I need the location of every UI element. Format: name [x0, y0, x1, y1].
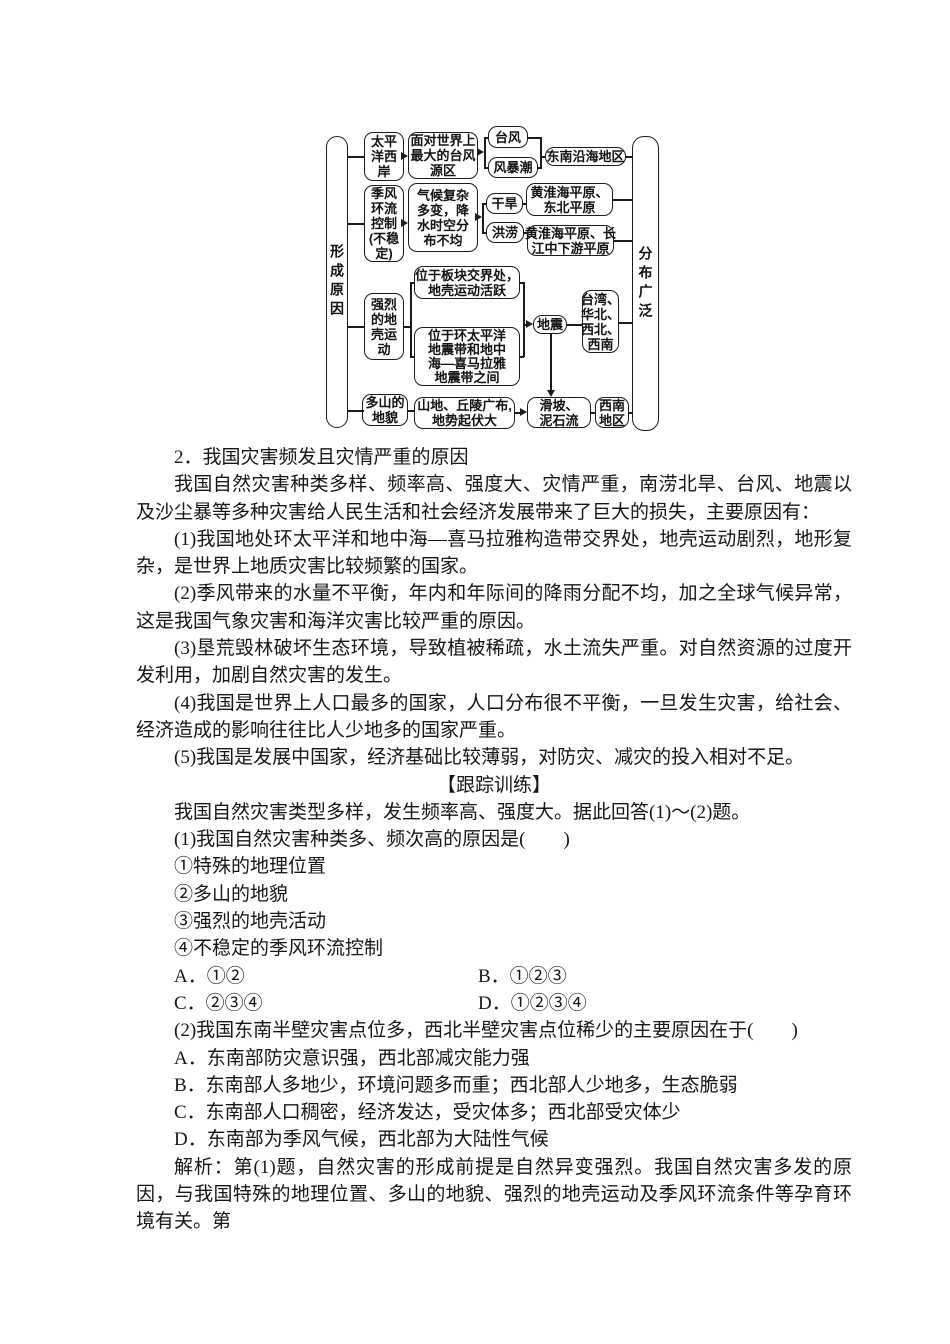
node-earthquake: 地震 — [533, 315, 567, 334]
node-se-coastal-area: 东南沿海地区 — [545, 147, 626, 166]
node-huanghuai-northeast-plain: 黄淮海平原、 东北平原 — [526, 183, 613, 216]
connector — [410, 282, 415, 284]
node-landslide-debris-flow: 滑坡、 泥石流 — [527, 397, 591, 428]
connector — [410, 356, 415, 358]
option-c: C．②③④ — [174, 990, 478, 1017]
connector — [482, 232, 487, 234]
reason-paragraph-4: (4)我国是世界上人口最多的国家，人口分布很不平衡，一旦发生灾害，给社会、经济造… — [136, 690, 852, 745]
node-hilly-terrain: 山地、丘陵广布, 地势起伏大 — [414, 397, 515, 429]
node-typhoon-source: 面对世界上 最大的台风 源区 — [408, 132, 478, 179]
connector — [348, 223, 364, 225]
section-heading: 2．我国灾害频发且灾情严重的原因 — [136, 444, 852, 471]
reason-paragraph-3: (3)垦荒毁林破坏生态环境，导致植被稀疏，水土流失严重。对自然资源的过度开发利用… — [136, 635, 852, 690]
question-2-stem: (2)我国东南半壁灾害点位多，西北半壁灾害点位稀少的主要原因在于( ) — [136, 1017, 852, 1044]
document-body: 2．我国灾害频发且灾情严重的原因 我国自然灾害种类多样、频率高、强度大、灾情严重… — [136, 444, 852, 1236]
node-typhoon: 台风 — [488, 126, 528, 148]
connector — [540, 137, 542, 169]
disaster-concept-map: 形成原因 分布广泛 太平 洋西 岸 季风 环流 控制 (不稳 定) 强烈 的地 … — [320, 126, 662, 440]
connector — [614, 240, 632, 242]
node-monsoon-circulation: 季风 环流 控制 (不稳 定) — [364, 185, 404, 262]
connector — [523, 203, 527, 205]
question-2-option-b: B．东南部人多地少，环境问题多而重；西北部人少地多，生态脆弱 — [136, 1072, 852, 1099]
node-pacific-west-coast: 太平 洋西 岸 — [364, 132, 404, 181]
node-storm-surge: 风暴潮 — [488, 157, 538, 178]
connector — [613, 199, 632, 201]
node-drought: 干旱 — [486, 193, 523, 214]
training-header: 【跟踪训练】 — [136, 772, 852, 799]
connector — [348, 410, 364, 412]
scanned-textbook-page: 形成原因 分布广泛 太平 洋西 岸 季风 环流 控制 (不稳 定) 强烈 的地 … — [0, 0, 950, 1344]
connector — [348, 156, 364, 158]
node-mountainous-landform: 多山的 地貌 — [362, 394, 408, 426]
reason-paragraph-5: (5)我国是发展中国家，经济基础比较薄弱，对防灾、减灾的投入相对不足。 — [136, 744, 852, 771]
question-1-options-row-2: C．②③④ D．①②③④ — [136, 990, 852, 1017]
connector — [540, 156, 545, 158]
reason-paragraph-1: (1)我国地处环太平洋和地中海—喜马拉雅构造带交界处，地壳运动剧烈，地形复杂，是… — [136, 526, 852, 581]
node-formation-causes: 形成原因 — [326, 136, 348, 428]
connector — [410, 282, 412, 357]
arrowhead — [477, 148, 484, 156]
node-strong-crustal-movement: 强烈 的地 壳运 动 — [364, 293, 404, 360]
connector — [482, 203, 487, 205]
arrowhead — [401, 152, 408, 160]
arrowhead — [401, 219, 408, 227]
exercise-intro: 我国自然灾害类型多样，发生频率高、强度大。据此回答(1)～(2)题。 — [136, 799, 852, 826]
connector — [482, 203, 484, 234]
analysis-paragraph: 解析：第(1)题，自然灾害的形成前提是自然异变强烈。我国自然灾害多发的原因，与我… — [136, 1154, 852, 1236]
arrowhead — [520, 408, 527, 416]
connector — [567, 324, 582, 326]
connector — [591, 412, 595, 414]
connector — [523, 282, 525, 357]
connector — [484, 167, 488, 169]
node-complex-climate: 气候复杂 多变，降 水时空分 布不均 — [408, 183, 478, 252]
connector — [348, 326, 364, 328]
connector — [484, 137, 488, 139]
reason-paragraph-2: (2)季风带来的水量不平衡，年内和年际间的降雨分配不均，加之全球气候异常，这是我… — [136, 580, 852, 635]
node-huanghuai-yangtze-plain: 黄淮海平原、长 江中下游平原 — [527, 225, 614, 256]
connector — [619, 322, 632, 324]
question-1-options-row-1: A．①② B．①②③ — [136, 963, 852, 990]
question-1-item-3: ③强烈的地壳活动 — [136, 908, 852, 935]
connector — [626, 156, 632, 158]
node-flood: 洪涝 — [486, 222, 524, 243]
connector — [484, 137, 486, 169]
node-wide-distribution: 分布广泛 — [632, 136, 659, 431]
node-plate-boundary: 位于板块交界处， 地壳运动活跃 — [414, 266, 520, 299]
question-1-stem: (1)我国自然灾害种类多、频次高的原因是( ) — [136, 826, 852, 853]
question-2-option-a: A．东南部防灾意识强，西北部减灾能力强 — [136, 1045, 852, 1072]
connector — [408, 410, 414, 412]
connector — [524, 232, 528, 234]
option-b: B．①②③ — [478, 963, 567, 990]
question-1-item-2: ②多山的地貌 — [136, 881, 852, 908]
node-seismic-belts: 位于环太平洋 地震带和地中 海—喜马拉雅 地震带之间 — [414, 327, 520, 386]
intro-paragraph: 我国自然灾害种类多样、频率高、强度大、灾情严重，南涝北旱、台风、地震以及沙尘暴等… — [136, 471, 852, 526]
connector — [629, 412, 632, 414]
question-1-item-4: ④不稳定的季风环流控制 — [136, 935, 852, 962]
arrowhead — [526, 320, 533, 328]
arrowhead — [475, 213, 482, 221]
node-taiwan-north-northwest-southwest: 台湾、 华北、 西北、 西南 — [582, 290, 619, 353]
arrowhead-down — [547, 390, 555, 397]
option-a: A．①② — [174, 963, 478, 990]
question-2-option-c: C．东南部人口稠密，经济发达，受灾体多；西北部受灾体少 — [136, 1099, 852, 1126]
question-2-option-d: D．东南部为季风气候，西北部为大陆性气候 — [136, 1126, 852, 1153]
question-1-item-1: ①特殊的地理位置 — [136, 853, 852, 880]
node-southwest-region: 西南 地区 — [595, 397, 629, 428]
option-d: D．①②③④ — [478, 990, 587, 1017]
connector — [550, 334, 552, 390]
